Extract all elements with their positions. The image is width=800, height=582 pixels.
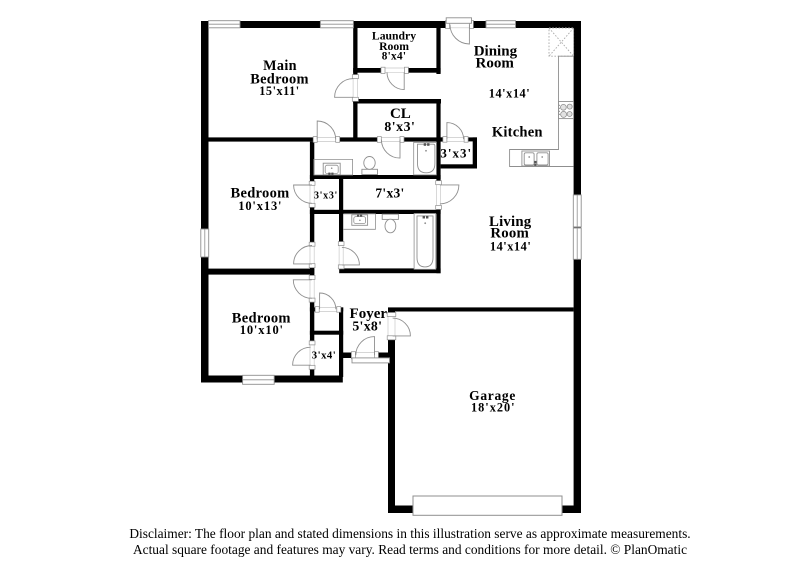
svg-text:Kitchen: Kitchen: [492, 124, 543, 140]
svg-text:8'x3': 8'x3': [384, 119, 415, 134]
svg-text:10'x13': 10'x13': [238, 199, 282, 213]
svg-text:10'x10': 10'x10': [240, 323, 284, 337]
svg-text:3'x3': 3'x3': [314, 191, 338, 202]
svg-text:3'x3': 3'x3': [440, 146, 472, 161]
svg-text:3'x4': 3'x4': [312, 350, 336, 362]
svg-text:14'x14': 14'x14': [490, 239, 531, 253]
svg-text:Room: Room: [476, 55, 515, 71]
svg-text:7'x3': 7'x3': [375, 185, 404, 200]
svg-text:14'x14': 14'x14': [489, 87, 530, 101]
svg-text:18'x20': 18'x20': [471, 400, 516, 414]
svg-text:8'x4': 8'x4': [382, 50, 407, 62]
svg-text:5'x8': 5'x8': [352, 318, 382, 333]
svg-text:15'x11': 15'x11': [259, 84, 299, 98]
